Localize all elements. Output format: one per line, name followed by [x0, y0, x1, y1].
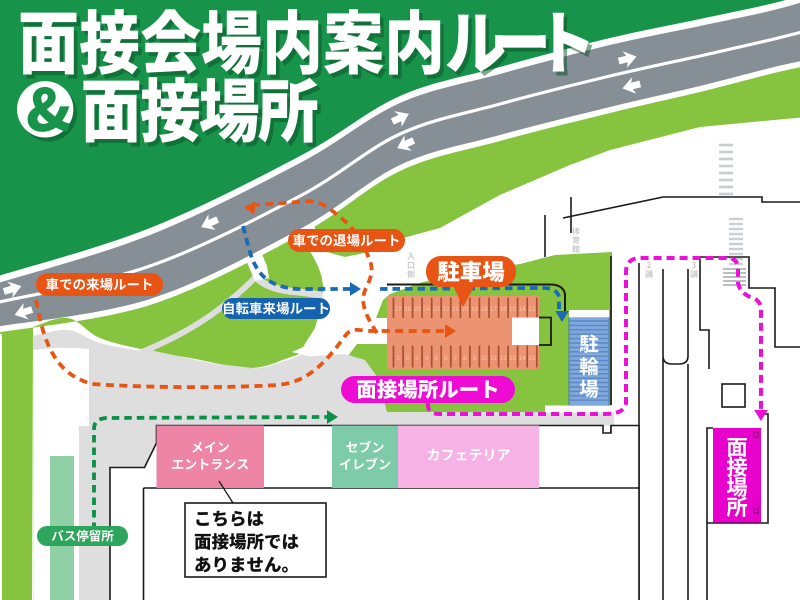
svg-text:24: 24 [423, 306, 431, 313]
svg-text:2: 2 [406, 355, 410, 362]
svg-text:6: 6 [444, 355, 448, 362]
svg-text:17: 17 [490, 306, 498, 313]
svg-text:5: 5 [434, 355, 438, 362]
svg-text:27: 27 [394, 306, 402, 313]
svg-text:15: 15 [528, 355, 536, 362]
svg-text:4: 4 [425, 355, 429, 362]
svg-text:14: 14 [518, 306, 526, 313]
svg-text:1: 1 [396, 355, 400, 362]
svg-text:9: 9 [473, 355, 477, 362]
svg-text:26: 26 [404, 306, 412, 313]
svg-text:8: 8 [463, 355, 467, 362]
svg-text:15: 15 [509, 306, 517, 313]
svg-text:3: 3 [415, 355, 419, 362]
svg-text:11: 11 [490, 355, 497, 362]
svg-text:14: 14 [518, 355, 526, 362]
svg-text:16: 16 [499, 306, 507, 313]
svg-text:12: 12 [499, 355, 507, 362]
svg-text:20: 20 [461, 306, 469, 313]
svg-text:22: 22 [442, 306, 450, 313]
svg-text:21: 21 [452, 306, 460, 313]
svg-text:18: 18 [480, 306, 488, 313]
svg-text:10: 10 [480, 355, 488, 362]
svg-text:25: 25 [413, 306, 421, 313]
svg-text:13: 13 [528, 306, 536, 313]
svg-text:23: 23 [433, 306, 441, 313]
svg-text:19: 19 [471, 306, 479, 313]
svg-text:7: 7 [453, 355, 457, 362]
svg-text:13: 13 [509, 355, 517, 362]
